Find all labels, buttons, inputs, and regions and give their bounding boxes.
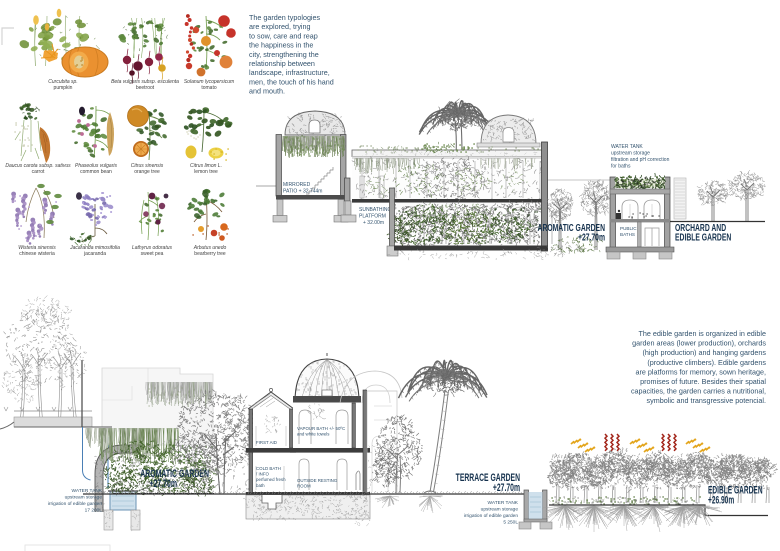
svg-text:to sow, care and reap: to sow, care and reap [249, 31, 318, 40]
svg-text:PLATFORM: PLATFORM [359, 214, 386, 220]
svg-text:+27.70m: +27.70m [149, 477, 177, 489]
svg-text:pumpkin: pumpkin [54, 85, 73, 91]
svg-text:/ INFO: / INFO [256, 472, 270, 477]
svg-text:MIRRORED: MIRRORED [283, 182, 311, 188]
svg-text:upstream storage: upstream storage [481, 507, 519, 513]
svg-text:PUBLIC: PUBLIC [620, 226, 637, 231]
svg-text:The garden typologies: The garden typologies [249, 13, 321, 22]
svg-text:filtration and pH correction: filtration and pH correction [611, 157, 670, 163]
svg-text:tomato: tomato [201, 85, 217, 91]
svg-text:common bean: common bean [80, 169, 112, 175]
svg-text:upstream storage: upstream storage [611, 151, 650, 157]
svg-text:promises of future. Besides th: promises of future. Besides their spatia… [640, 377, 766, 386]
svg-text:EDIBLE GARDEN: EDIBLE GARDEN [675, 231, 731, 243]
svg-text:(high production) and hanging: (high production) and hanging gardens [643, 348, 767, 357]
svg-text:+ 32.00m: + 32.00m [363, 220, 384, 226]
svg-text:OUTSIDE RESTING: OUTSIDE RESTING [297, 478, 338, 483]
svg-text:city, strengthening the: city, strengthening the [249, 50, 319, 59]
svg-text:irrigation of edible garden: irrigation of edible garden [48, 501, 102, 507]
svg-text:the happiness in the: the happiness in the [249, 41, 313, 50]
svg-text:upstream storage: upstream storage [65, 495, 103, 501]
svg-text:symbolic and transgressive pot: symbolic and transgressive potencial. [647, 396, 766, 405]
svg-text:5 250L: 5 250L [503, 520, 518, 526]
svg-text:for baths: for baths [611, 164, 631, 170]
svg-text:FIRST AID: FIRST AID [256, 440, 277, 445]
svg-text:and mouth.: and mouth. [249, 87, 285, 96]
svg-text:jacaranda: jacaranda [83, 251, 106, 257]
svg-text:PATIO + 32.744m: PATIO + 32.744m [283, 189, 322, 195]
svg-text:are platforms for memory, sown: are platforms for memory, sown heritage, [636, 367, 767, 376]
svg-text:are explored, trying: are explored, trying [249, 22, 311, 31]
svg-text:+26.90m: +26.90m [708, 494, 734, 506]
svg-text:VAPOUR BATH +/- 50ºC: VAPOUR BATH +/- 50ºC [297, 426, 345, 431]
svg-text:WATER TANK: WATER TANK [488, 500, 519, 506]
svg-text:chinese wisteria: chinese wisteria [19, 251, 55, 257]
svg-text:bath: bath [256, 483, 265, 488]
svg-text:+27.70m: +27.70m [493, 481, 520, 493]
svg-text:beetroot: beetroot [136, 85, 155, 91]
svg-text:landscape, infrastructure,: landscape, infrastructure, [249, 68, 330, 77]
svg-text:irrigation of edible garden: irrigation of edible garden [464, 513, 518, 519]
svg-text:lemon tree: lemon tree [194, 169, 218, 175]
svg-text:garden areas (lower production: garden areas (lower production), orchard… [632, 339, 766, 348]
svg-text:WATER TANK: WATER TANK [611, 144, 643, 150]
svg-text:ROOM: ROOM [297, 484, 311, 489]
svg-text:relationship between: relationship between [249, 59, 315, 68]
svg-text:carrot: carrot [32, 169, 45, 175]
svg-text:COLD BATH: COLD BATH [256, 466, 281, 471]
svg-text:WATER TANK: WATER TANK [72, 488, 103, 494]
svg-text:sweet pea: sweet pea [141, 251, 164, 257]
svg-text:capacities, the garden carries: capacities, the garden carries a nutriti… [631, 387, 766, 396]
svg-text:and white towels: and white towels [297, 432, 330, 437]
svg-text:17 200L: 17 200L [85, 508, 103, 514]
svg-text:orange tree: orange tree [134, 169, 160, 175]
svg-text:perfumed fresh: perfumed fresh [256, 477, 286, 482]
svg-text:(productive climbers). Edible: (productive climbers). Edible gardens [647, 358, 766, 367]
svg-text:bearberry tree: bearberry tree [194, 251, 226, 257]
svg-text:BATHS: BATHS [620, 232, 635, 237]
svg-text:The edible garden is organized: The edible garden is organized in edible [639, 329, 766, 338]
svg-text:men, the touch of his hand: men, the touch of his hand [249, 77, 334, 86]
svg-text:SUNBATHING: SUNBATHING [359, 207, 392, 213]
svg-text:+27.70m: +27.70m [578, 231, 605, 243]
